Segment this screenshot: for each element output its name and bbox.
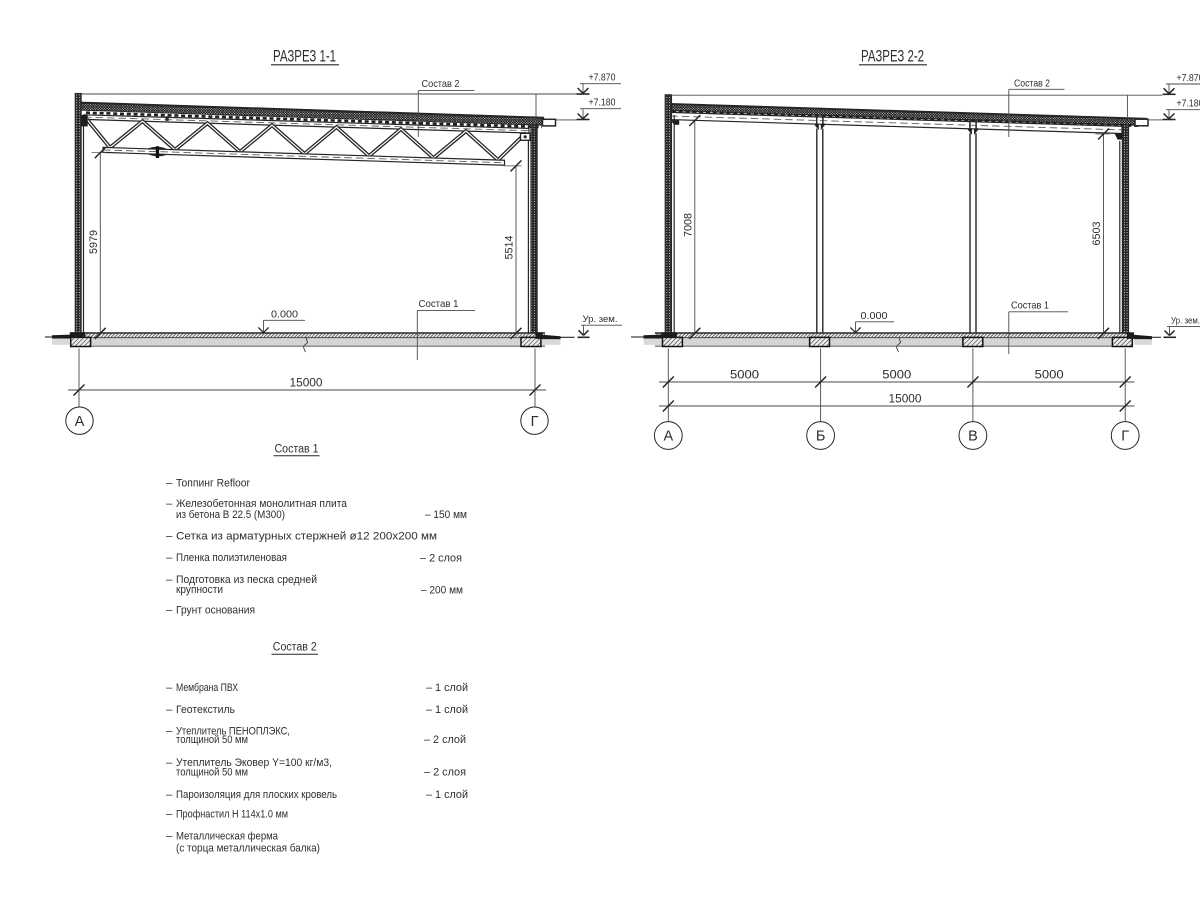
svg-text:Б: Б [816,429,826,445]
svg-text:А: А [75,414,85,430]
svg-text:Профнастил Н 114х1.0 мм: Профнастил Н 114х1.0 мм [176,809,288,821]
svg-text:–: – [166,477,173,489]
svg-text:Г: Г [531,414,539,430]
svg-text:крупности: крупности [176,584,223,596]
svg-text:(с торца металлическая балка): (с торца металлическая балка) [176,842,320,854]
svg-text:толщиной 50 мм: толщиной 50 мм [176,734,248,746]
svg-text:Ур. зем.: Ур. зем. [1171,316,1200,327]
svg-text:Мембрана ПВХ: Мембрана ПВХ [176,682,238,694]
svg-text:+7.870: +7.870 [589,73,616,84]
svg-text:Топпинг Refloor: Топпинг Refloor [176,477,250,489]
svg-text:Грунт основания: Грунт основания [176,605,255,617]
svg-text:РАЗРЕЗ 1-1: РАЗРЕЗ 1-1 [273,47,336,66]
svg-text:5000: 5000 [882,367,911,381]
svg-text:0.000: 0.000 [271,308,298,320]
svg-text:– 2 слоя: – 2 слоя [424,766,466,778]
svg-text:из бетона В 22.5 (М300): из бетона В 22.5 (М300) [176,509,285,521]
svg-text:–: – [166,789,173,801]
svg-text:–: – [166,552,173,564]
svg-text:Ур. зем.: Ур. зем. [583,314,618,325]
svg-text:РАЗРЕЗ 2-2: РАЗРЕЗ 2-2 [861,47,924,66]
svg-text:–: – [166,704,173,716]
svg-text:Состав 2: Состав 2 [422,78,460,90]
svg-text:6503: 6503 [1091,222,1103,246]
svg-text:–: – [166,809,173,821]
svg-text:Металлическая ферма: Металлическая ферма [176,831,279,843]
svg-text:5514: 5514 [504,236,516,260]
svg-text:толщиной 50 мм: толщиной 50 мм [176,766,248,778]
svg-text:15000: 15000 [889,391,922,405]
svg-text:Состав 1: Состав 1 [419,298,459,310]
svg-text:–: – [166,574,173,586]
svg-text:Пленка полиэтиленовая: Пленка полиэтиленовая [176,552,287,564]
svg-text:–: – [166,605,173,617]
svg-text:– 2 слой: – 2 слой [424,734,466,746]
svg-text:+7.180: +7.180 [1177,99,1200,110]
svg-text:–: – [166,530,173,542]
svg-text:7008: 7008 [682,213,694,237]
svg-text:– 1 слой: – 1 слой [426,704,468,716]
svg-text:В: В [968,429,978,445]
svg-text:15000: 15000 [290,376,323,390]
svg-text:Пароизоляция для плоских крове: Пароизоляция для плоских кровель [176,789,337,801]
svg-text:Состав 2: Состав 2 [273,642,317,654]
svg-text:+7.180: +7.180 [589,98,616,109]
svg-text:– 200 мм: – 200 мм [421,584,463,596]
svg-text:– 1 слой: – 1 слой [426,789,468,801]
svg-text:– 2 слоя: – 2 слоя [420,552,462,564]
svg-text:–: – [166,682,173,694]
svg-text:–: – [166,831,173,843]
svg-text:–: – [166,498,173,510]
svg-text:А: А [663,429,673,445]
svg-text:Состав 2: Состав 2 [1014,78,1050,90]
svg-text:5000: 5000 [1035,367,1064,381]
svg-text:Состав 1: Состав 1 [275,443,319,455]
svg-text:– 1 слой: – 1 слой [426,682,468,694]
svg-text:– 150 мм: – 150 мм [425,509,467,521]
svg-text:–: – [166,757,173,769]
svg-text:Геотекстиль: Геотекстиль [176,704,235,716]
svg-text:+7.870: +7.870 [1177,73,1200,84]
svg-text:5979: 5979 [88,230,100,254]
svg-text:5000: 5000 [730,367,759,381]
svg-text:Г: Г [1121,429,1129,445]
svg-text:0.000: 0.000 [861,310,888,322]
svg-text:–: – [166,725,173,737]
svg-text:Состав 1: Состав 1 [1011,300,1049,312]
svg-text:Сетка из арматурных стержней ø: Сетка из арматурных стержней ø12 200х200… [176,530,437,542]
